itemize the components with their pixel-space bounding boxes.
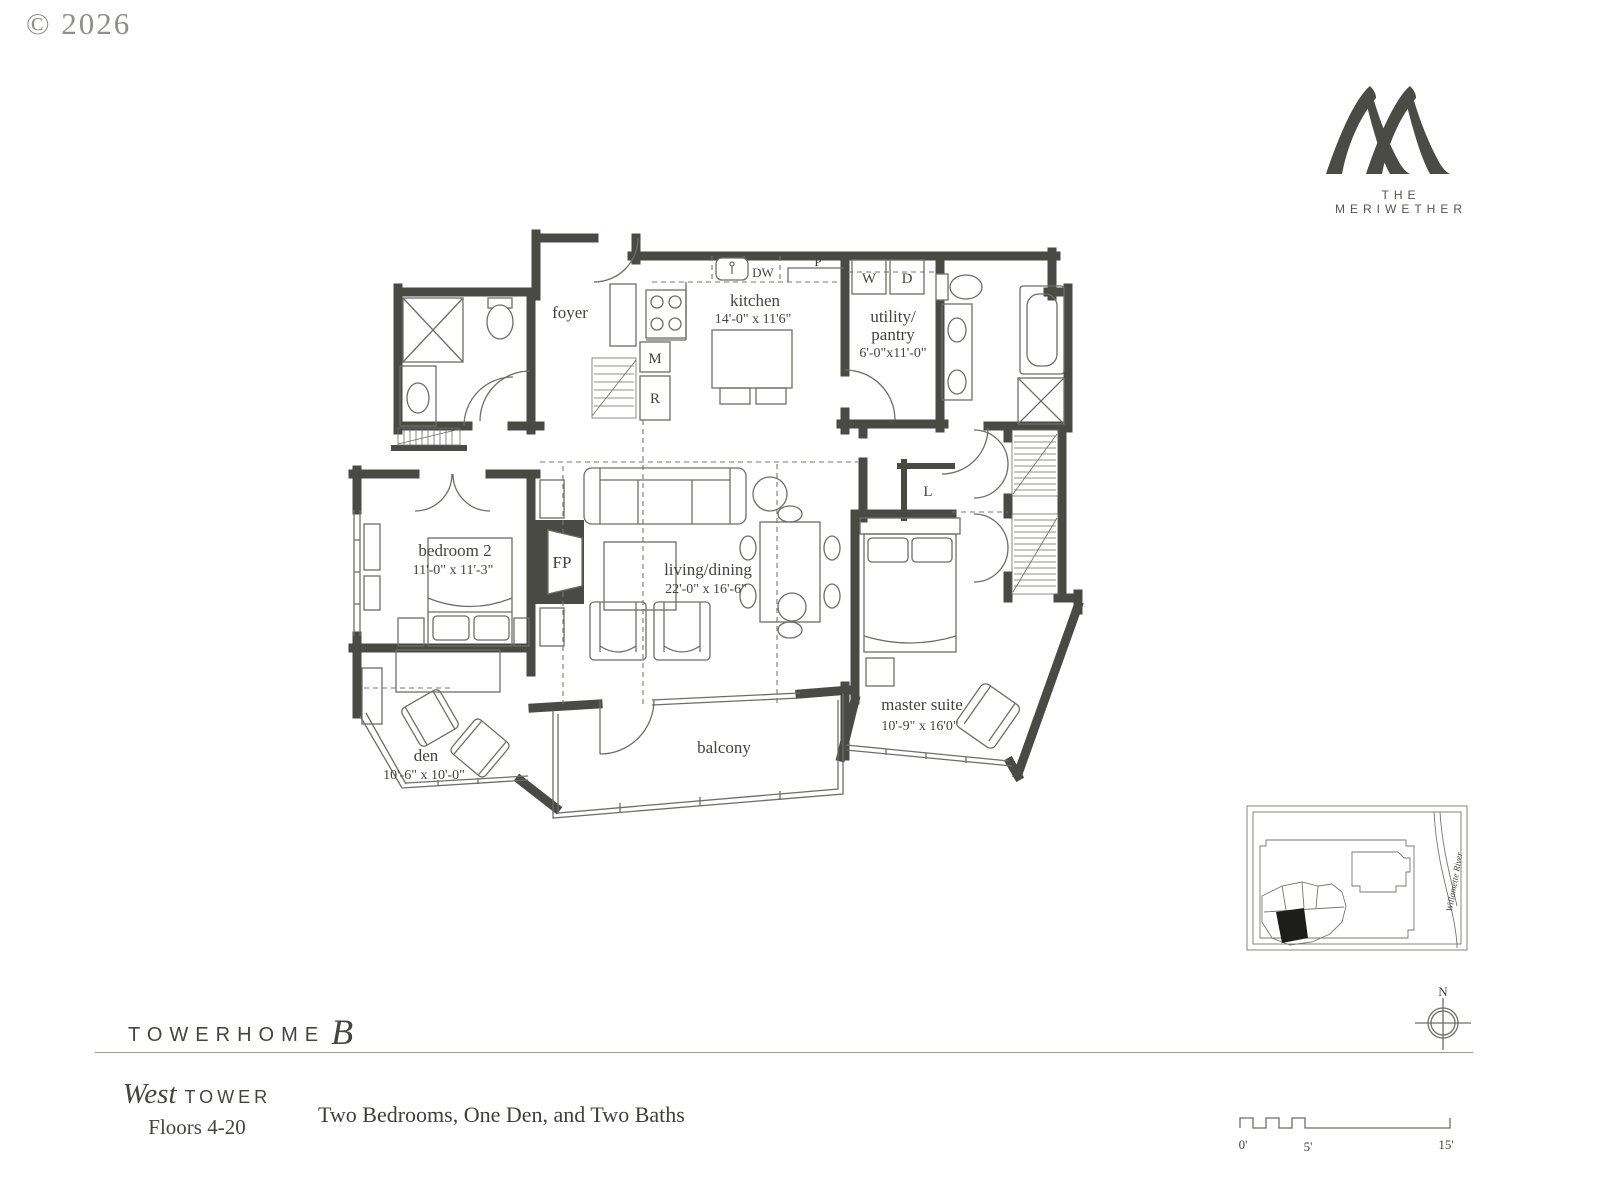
washer-label: W (862, 271, 877, 287)
master-suite-furniture (860, 518, 1022, 750)
sink-icon (407, 383, 429, 413)
dining-chair-icon (778, 622, 802, 638)
sofa-icon (584, 468, 746, 524)
scale-zero-label: 0' (1239, 1137, 1248, 1152)
compass-north-label: N (1438, 984, 1448, 999)
room-label-utility-2: pantry (871, 325, 915, 344)
room-dims-utility: 6'-0"x11'-0" (859, 346, 926, 361)
room-label-utility-1: utility/ (870, 307, 916, 326)
footer-divider (95, 1052, 1473, 1053)
bed-icon (864, 534, 956, 652)
closet-door-arc (974, 430, 1008, 464)
unit-summary: Two Bedrooms, One Den, and Two Baths (318, 1102, 685, 1128)
towerhome-word: TOWERHOME (128, 1024, 325, 1047)
dining-chair-icon (824, 584, 840, 608)
armchair-icon (654, 602, 710, 660)
room-label-foyer: foyer (552, 303, 588, 322)
scale-fifteen-label: 15' (1438, 1137, 1453, 1152)
balcony-door-arc (600, 700, 654, 754)
hall-closet-hatch (398, 428, 460, 445)
dresser-icon (364, 576, 380, 610)
fireplace-label: FP (553, 553, 572, 572)
side-table-icon (778, 593, 806, 621)
room-dims-living: 22'-0" x 16'-6" (665, 582, 747, 597)
pantry-label: P (814, 254, 821, 269)
bedroom2-door-right-arc (453, 474, 490, 511)
stove-icon (646, 290, 686, 338)
headboard-icon (860, 518, 960, 534)
floors-range: Floors 4-20 (112, 1115, 282, 1140)
dining-chair-icon (824, 536, 840, 560)
room-dims-master: 10'-9" x 16'0" (881, 719, 958, 734)
towerhome-letter: B (331, 1018, 353, 1047)
room-label-kitchen: kitchen (730, 291, 781, 310)
wardrobe-hatch (1012, 430, 1058, 594)
stool-icon (720, 388, 750, 404)
pillow-icon (433, 616, 469, 640)
armchair-icon (590, 602, 646, 660)
room-labels: foyer kitchen 14'-0" x 11'6" utility/ pa… (383, 291, 963, 783)
toilet-icon (950, 275, 982, 299)
closet-door-arc (974, 514, 1008, 548)
room-label-den: den (414, 746, 439, 765)
scale-bar: 0' 5' 15' (1239, 1118, 1454, 1154)
nightstand-icon (866, 658, 894, 686)
east-building-outline (1352, 852, 1410, 892)
nightstand-icon (398, 618, 424, 646)
utility-door-arc (845, 370, 895, 420)
console-icon (540, 480, 564, 518)
dining-chair-icon (778, 506, 802, 522)
toilet-icon (487, 305, 513, 339)
stool-icon (756, 388, 786, 404)
scale-five-label: 5' (1304, 1139, 1313, 1154)
dining-table-icon (760, 522, 820, 622)
pillow-icon (912, 538, 952, 562)
closet-door-arc (974, 548, 1008, 582)
kitchen-island-icon (712, 330, 792, 388)
sink-icon (948, 318, 966, 342)
room-dims-den: 10'-6" x 10'-0" (383, 768, 465, 783)
vanity-icon (400, 366, 436, 426)
side-table-icon (753, 477, 787, 511)
tower-name-script: West (123, 1078, 177, 1110)
room-label-master: master suite (881, 695, 963, 714)
foyer-hall-door-arc (480, 371, 530, 421)
bedroom2-door-left-arc (415, 474, 452, 511)
compass-rose: N (1415, 984, 1471, 1050)
room-dims-kitchen: 14'-0" x 11'6" (715, 312, 792, 327)
coat-closet-hatch (592, 358, 636, 418)
tower-word: TOWER (185, 1087, 272, 1107)
console-icon (540, 608, 564, 646)
dishwasher-label: DW (752, 265, 774, 280)
pillow-icon (868, 538, 908, 562)
towerhome-title: TOWERHOME B (128, 1018, 353, 1047)
floorplan-page: © 2026 THE MERIWETHER (0, 0, 1600, 1200)
dryer-label: D (902, 271, 913, 287)
river-label: Willamette River (1444, 851, 1464, 913)
desk-icon (396, 650, 500, 692)
dresser-icon (364, 524, 380, 570)
den-chair-icon (400, 688, 460, 748)
foyer-fixtures (592, 284, 636, 418)
room-dims-bedroom2: 11'-0" x 11'-3" (413, 563, 494, 578)
dining-chair-icon (740, 536, 756, 560)
hall-closet-icon (610, 284, 636, 346)
room-label-living: living/dining (664, 560, 752, 579)
bathtub-inner (1027, 294, 1057, 366)
bath2-door-arc (464, 377, 513, 426)
bookshelf-icon (362, 668, 382, 724)
pillow-icon (474, 616, 509, 640)
refrigerator-label: R (650, 391, 660, 407)
tower-info: West TOWER Floors 4-20 (112, 1078, 282, 1140)
room-label-balcony: balcony (697, 738, 751, 757)
closet-door-arc (974, 464, 1008, 498)
site-map: Willamette River (1247, 806, 1467, 950)
toilet-tank-icon (936, 274, 948, 300)
room-label-bedroom2: bedroom 2 (418, 541, 491, 560)
sink-icon (948, 370, 966, 394)
armchair-icon (954, 682, 1022, 751)
microwave-label: M (648, 351, 661, 367)
linen-label: L (923, 484, 932, 500)
